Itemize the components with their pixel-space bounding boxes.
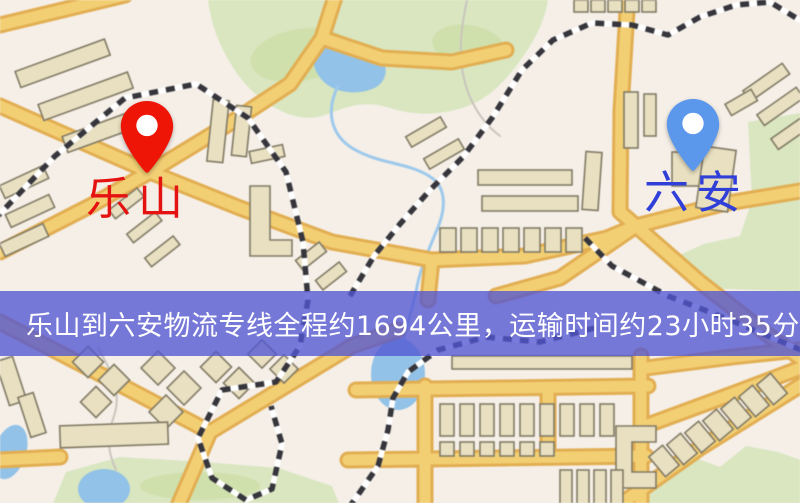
route-info-banner: 乐山到六安物流专线全程约1694公里，运输时间约23小时35分钟. — [0, 291, 800, 356]
origin-pin-icon — [120, 101, 174, 173]
route-info-text: 乐山到六安物流专线全程约1694公里，运输时间约23小时35分钟. — [0, 304, 800, 343]
origin-marker[interactable] — [120, 101, 174, 173]
map-view: 乐山 六安 乐山到六安物流专线全程约1694公里，运输时间约23小时35分钟. — [0, 0, 800, 503]
destination-pin-icon — [666, 99, 720, 171]
destination-marker[interactable] — [666, 99, 720, 171]
map-canvas[interactable] — [0, 0, 800, 503]
